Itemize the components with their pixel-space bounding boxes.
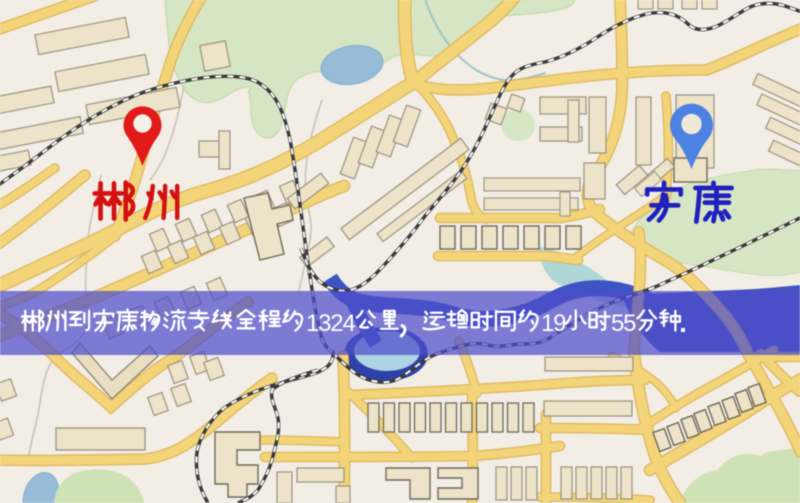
svg-text:55: 55 xyxy=(611,310,636,337)
svg-text:19: 19 xyxy=(541,310,566,337)
svg-text:1324: 1324 xyxy=(306,310,355,337)
